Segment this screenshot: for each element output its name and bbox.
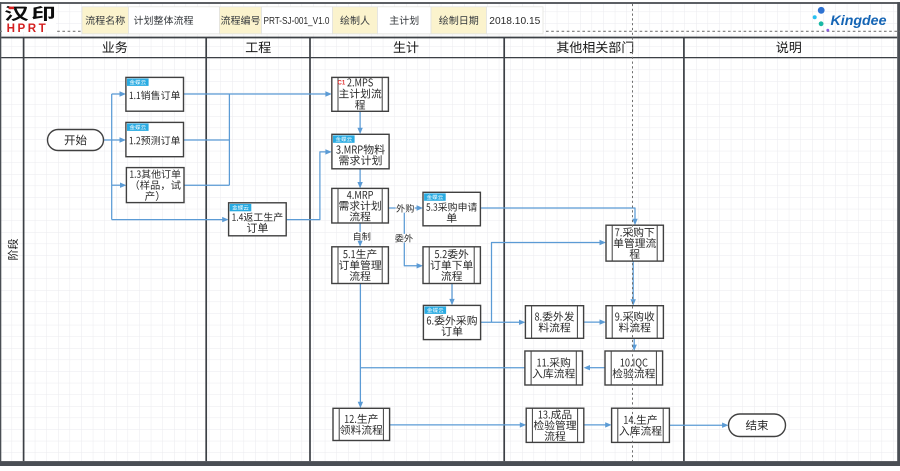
svg-text:Kingdee: Kingdee (831, 13, 887, 29)
svg-text:HPRT: HPRT (7, 22, 49, 35)
svg-text:C1: C1 (338, 80, 346, 86)
svg-text:PRT-SJ-001_V1.0: PRT-SJ-001_V1.0 (264, 16, 330, 27)
svg-text:2018.10.15: 2018.10.15 (489, 16, 540, 27)
